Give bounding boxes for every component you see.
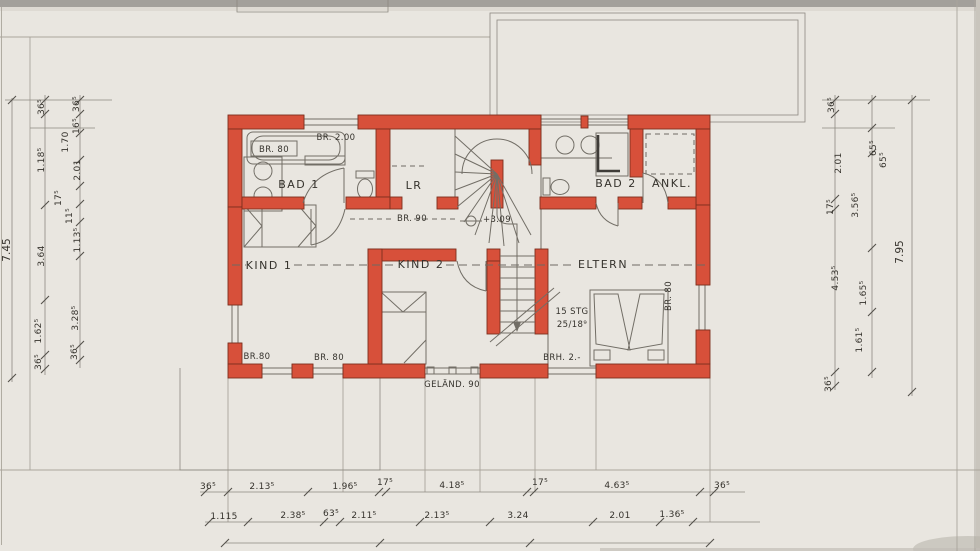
dim-left-inner-7: 3.28⁵ xyxy=(71,305,81,330)
partition-bad1-lr xyxy=(376,129,390,197)
stair-wall-west xyxy=(487,261,500,334)
dim-bottom1-0: 36⁵ xyxy=(200,482,216,492)
south-window1-label: BR.80 xyxy=(244,352,271,362)
dim-left-mid-2: 3.64 xyxy=(37,245,47,266)
south-wall xyxy=(596,364,710,378)
scanned-floor-plan-sheet: BAD 1 LR BAD 2 ANKL. KIND 1 KIND 2 ELTER… xyxy=(0,0,980,551)
dim-bottom1-7: 36⁵ xyxy=(714,481,730,491)
east-wall xyxy=(696,129,710,205)
corridor-wall xyxy=(242,197,304,209)
north-wall xyxy=(628,115,710,129)
dim-left-inner-3: 2.01 xyxy=(73,159,83,180)
dim-bottom1-1: 2.13⁵ xyxy=(249,482,274,492)
dim-bottom2-5: 3.24 xyxy=(507,511,528,521)
west-wall xyxy=(228,207,242,305)
dim-left-inner-6: 1.13⁵ xyxy=(73,227,83,252)
ankleide-fixtures xyxy=(646,134,694,174)
dim-right-mid-3: 1.65⁵ xyxy=(859,280,869,305)
floor-plan-drawing: BAD 1 LR BAD 2 ANKL. KIND 1 KIND 2 ELTER… xyxy=(0,0,980,551)
dim-right-inner-3: 4.53⁵ xyxy=(831,265,841,290)
stair-break-line xyxy=(490,288,560,346)
hall-door-label: BR. 90 xyxy=(397,214,427,224)
dim-right-mid-0: 65⁵ xyxy=(869,140,879,156)
dim-right-inner-0: 36⁵ xyxy=(827,97,837,113)
stair-count-label: 15 STG xyxy=(555,307,588,317)
north-wall xyxy=(228,115,304,129)
south-wall xyxy=(480,364,548,378)
dim-left-mid-3: 1.62⁵ xyxy=(34,318,44,343)
dim-bottom2-1: 2.38⁵ xyxy=(280,511,305,521)
room-label-eltern: ELTERN xyxy=(578,258,628,271)
dim-bottom1-4: 4.18⁵ xyxy=(439,481,464,491)
south-window2-label: BR. 80 xyxy=(314,353,344,363)
corridor-wall xyxy=(618,197,642,209)
dim-bottom2-3: 2.11⁵ xyxy=(351,511,376,521)
dim-right-inner-2: 17⁵ xyxy=(826,199,836,215)
partition-kind1-kind2 xyxy=(368,249,382,364)
dim-right-inner-4: 36⁵ xyxy=(824,376,834,392)
dim-right-mid-2: 3.56⁵ xyxy=(851,192,861,217)
corridor-wall xyxy=(668,197,696,209)
dim-right-inner-1: 2.01 xyxy=(834,152,844,173)
west-wall xyxy=(228,129,242,207)
partition-stair-bad2 xyxy=(529,129,541,165)
corridor-wall-south xyxy=(487,249,500,261)
dim-left-mid-4: 36⁵ xyxy=(34,354,44,370)
dim-bottom2-6: 2.01 xyxy=(609,511,630,521)
stair-wall-east xyxy=(535,249,548,334)
washbasin xyxy=(556,136,574,154)
dim-left-inner-0: 36⁵ xyxy=(72,96,82,112)
french-window-railing xyxy=(425,368,480,374)
toilet xyxy=(358,179,373,199)
dimension-chains xyxy=(5,95,930,547)
dim-left-inner-5: 11⁵ xyxy=(65,208,75,224)
south-wall xyxy=(343,364,425,378)
railing-label: GELÄND. 90 xyxy=(424,379,480,390)
dim-bottom1-5: 17⁵ xyxy=(532,478,548,488)
parapet-label: BRH. 2.- xyxy=(543,353,581,363)
room-label-ankl: ANKL. xyxy=(652,177,692,190)
dim-left-mid-0: 36⁵ xyxy=(37,99,47,115)
window-mullion xyxy=(581,116,588,128)
beds xyxy=(244,205,668,366)
dim-right-mid-4: 1.61⁵ xyxy=(855,327,865,352)
room-label-bad1: BAD 1 xyxy=(278,178,320,191)
dim-bottom2-0: 1.115 xyxy=(210,512,237,522)
north-window-label: BR. 2.00 xyxy=(317,133,356,143)
east-wall xyxy=(696,330,710,364)
west-wall xyxy=(228,343,242,364)
dim-bottom1-2: 1.96⁵ xyxy=(332,482,357,492)
south-wall xyxy=(228,364,262,378)
bed-kind2 xyxy=(381,292,426,364)
room-label-kind1: KIND 1 xyxy=(246,259,293,272)
south-wall xyxy=(292,364,313,378)
dim-bottom2-7: 1.36⁵ xyxy=(659,510,684,520)
east-window-label: BR. 80 xyxy=(664,281,674,311)
shower-partition xyxy=(598,135,620,171)
corridor-wall xyxy=(390,197,402,209)
dim-right-mid-1: 65⁵ xyxy=(879,152,889,168)
corridor-wall xyxy=(437,197,458,209)
top-right-roof-outline xyxy=(490,13,805,122)
shower xyxy=(596,133,628,176)
room-label-kind2: KIND 2 xyxy=(398,258,445,271)
dim-bottom1-3: 17⁵ xyxy=(377,478,393,488)
dim-bottom1-6: 4.63⁵ xyxy=(604,481,629,491)
room-label-bad2: BAD 2 xyxy=(595,177,637,190)
dim-left-inner-2: 1.70 xyxy=(61,131,71,152)
dim-bottom2-2: 63⁵ xyxy=(323,509,339,519)
dim-left-inner-4: 17⁵ xyxy=(54,190,64,206)
tub-width-label: BR. 80 xyxy=(259,145,289,155)
lower-left-outline xyxy=(180,368,380,470)
washbasin xyxy=(254,162,272,180)
wardrobe-dashed xyxy=(646,134,694,174)
stair-ratio-label: 25/18⁹ xyxy=(557,320,587,330)
bed-eltern xyxy=(590,290,668,366)
door-bad2 xyxy=(596,203,618,226)
corridor-wall xyxy=(540,197,596,209)
level-mark-label: +3.09 xyxy=(483,215,511,225)
dim-left-mid-1: 1.18⁵ xyxy=(37,147,47,172)
north-wall xyxy=(358,115,541,129)
dim-left-inner-1: 16⁵ xyxy=(72,118,82,134)
partition-bad2-ankl xyxy=(630,129,643,177)
east-wall xyxy=(696,205,710,285)
dim-bottom2-4: 2.13⁵ xyxy=(424,511,449,521)
dim-right-total: 7.95 xyxy=(894,240,906,263)
corridor-wall xyxy=(346,197,390,209)
dim-left-total: 7.45 xyxy=(1,238,13,261)
toilet xyxy=(551,180,569,195)
room-label-lr: LR xyxy=(406,179,423,192)
toilet-cistern xyxy=(543,178,550,195)
dim-left-inner-8: 36⁵ xyxy=(70,344,80,360)
toilet-cistern xyxy=(356,171,374,178)
